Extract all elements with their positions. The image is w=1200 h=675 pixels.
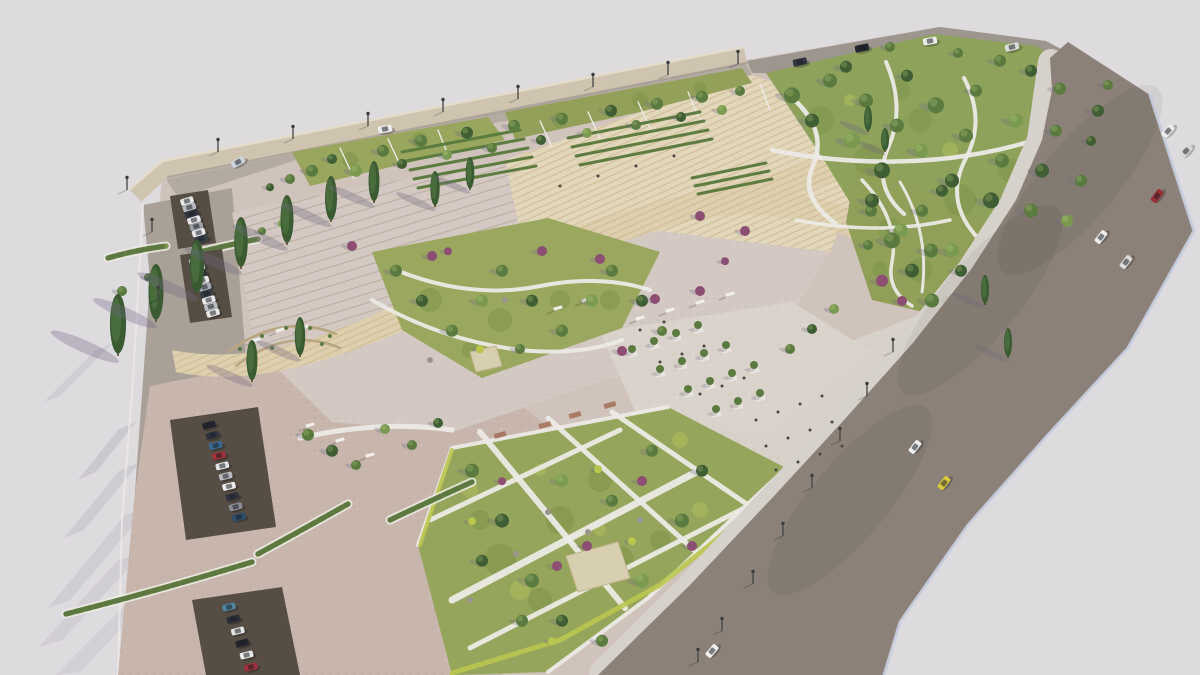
tree bbox=[468, 517, 476, 525]
tree-highlight bbox=[895, 225, 902, 232]
tree-highlight bbox=[557, 326, 563, 332]
tree-highlight bbox=[786, 89, 794, 97]
tree-highlight bbox=[391, 266, 397, 272]
landscape-rock bbox=[467, 597, 473, 603]
tree-highlight bbox=[398, 160, 403, 165]
tree bbox=[476, 345, 484, 353]
tree-highlight bbox=[891, 120, 898, 127]
tree-highlight bbox=[328, 155, 333, 160]
tree-highlight bbox=[259, 228, 263, 232]
tree-highlight bbox=[327, 446, 333, 452]
bosque-tree bbox=[700, 349, 708, 357]
tree-highlight bbox=[267, 184, 271, 188]
bollard bbox=[597, 175, 600, 178]
grass-patch-light bbox=[672, 432, 688, 448]
tree-highlight bbox=[352, 461, 357, 466]
tree-highlight bbox=[1010, 115, 1017, 122]
cypress-tree-light bbox=[466, 159, 471, 183]
tree-highlight bbox=[995, 56, 1001, 62]
street-lamp-head bbox=[666, 61, 669, 64]
tree-highlight bbox=[841, 62, 847, 68]
cypress-tree-light bbox=[369, 164, 376, 194]
street-lamp-head bbox=[156, 286, 159, 289]
bollard bbox=[681, 353, 684, 356]
tree bbox=[537, 246, 547, 256]
tree-highlight bbox=[587, 296, 593, 302]
landscape-rock bbox=[545, 509, 551, 515]
street-lamp-head bbox=[720, 617, 723, 620]
landscape-rock bbox=[502, 297, 508, 303]
tree-highlight bbox=[930, 99, 938, 107]
bosque-tree bbox=[694, 321, 702, 329]
street-lamp-head bbox=[591, 73, 594, 76]
tree-highlight bbox=[860, 95, 867, 102]
tree bbox=[427, 251, 437, 261]
landscape-rock bbox=[513, 551, 519, 557]
bosque-tree bbox=[650, 337, 658, 345]
tree-highlight bbox=[526, 575, 533, 582]
cypress-tree-light bbox=[326, 179, 333, 212]
street-lamp-head bbox=[291, 125, 294, 128]
street-lamp-head bbox=[696, 648, 699, 651]
tree bbox=[695, 286, 705, 296]
landscape-rock bbox=[585, 529, 591, 535]
bollard bbox=[821, 395, 824, 398]
tree-highlight bbox=[866, 195, 873, 202]
tree-highlight bbox=[954, 49, 959, 54]
bollard bbox=[775, 469, 778, 472]
tree-highlight bbox=[597, 636, 603, 642]
street-lamp-head bbox=[736, 50, 739, 53]
bosque-tree bbox=[756, 389, 764, 397]
street-lamp-head bbox=[150, 218, 153, 221]
tree-highlight bbox=[915, 145, 922, 152]
tree-highlight bbox=[583, 129, 588, 134]
tree-highlight bbox=[509, 121, 515, 127]
tree-highlight bbox=[434, 419, 439, 424]
tree-highlight bbox=[606, 106, 612, 112]
tree bbox=[628, 537, 636, 545]
tree-highlight bbox=[946, 175, 953, 182]
tree-highlight bbox=[118, 287, 123, 292]
tree bbox=[498, 477, 506, 485]
bollard bbox=[799, 403, 802, 406]
tree bbox=[876, 275, 888, 287]
bosque-tree bbox=[678, 357, 686, 365]
tree-highlight bbox=[378, 146, 384, 152]
tree-highlight bbox=[557, 616, 563, 622]
tree-highlight bbox=[286, 175, 291, 180]
bosque-tree bbox=[750, 361, 758, 369]
tree-highlight bbox=[925, 245, 932, 252]
tree bbox=[695, 211, 705, 221]
arc-shrub bbox=[284, 326, 288, 330]
tree-highlight bbox=[658, 327, 663, 332]
bosque-tree bbox=[728, 369, 736, 377]
street-lamp-head bbox=[516, 85, 519, 88]
cypress-tree-light bbox=[982, 277, 987, 299]
tree-highlight bbox=[676, 515, 683, 522]
tree-highlight bbox=[466, 465, 473, 472]
bollard bbox=[663, 321, 666, 324]
tree-highlight bbox=[1051, 126, 1057, 132]
tree-highlight bbox=[408, 441, 413, 446]
tree bbox=[897, 296, 907, 306]
bosque-tree bbox=[684, 385, 692, 393]
tree bbox=[595, 254, 605, 264]
landscape-rock bbox=[427, 357, 433, 363]
arc-shrub bbox=[308, 326, 312, 330]
tree-highlight bbox=[488, 144, 493, 149]
tree-highlight bbox=[1093, 106, 1099, 112]
bollard bbox=[703, 345, 706, 348]
tree-highlight bbox=[917, 206, 923, 212]
tree-highlight bbox=[830, 305, 835, 310]
tree-highlight bbox=[652, 99, 658, 105]
grass-patch-light bbox=[692, 502, 708, 518]
tree-highlight bbox=[303, 430, 309, 436]
bollard bbox=[635, 165, 638, 168]
cypress-tree-light bbox=[882, 129, 887, 146]
tree bbox=[582, 541, 592, 551]
street-lamp-head bbox=[216, 138, 219, 141]
tree-highlight bbox=[946, 245, 953, 252]
site-plan-svg bbox=[0, 0, 1200, 675]
tree-highlight bbox=[632, 121, 637, 126]
tree-highlight bbox=[824, 75, 831, 82]
tree-highlight bbox=[516, 345, 521, 350]
tree bbox=[687, 541, 697, 551]
bollard bbox=[699, 393, 702, 396]
street-lamp-head bbox=[751, 570, 754, 573]
tree-highlight bbox=[637, 296, 643, 302]
tree-highlight bbox=[462, 128, 468, 134]
bollard bbox=[639, 329, 642, 332]
tree-highlight bbox=[607, 496, 613, 502]
bollard bbox=[841, 445, 844, 448]
cypress-tree-light bbox=[296, 319, 302, 348]
bollard bbox=[765, 445, 768, 448]
arc-shrub bbox=[328, 334, 332, 338]
grass-patch bbox=[600, 290, 620, 310]
tree-highlight bbox=[307, 166, 313, 172]
landscape-rock bbox=[637, 517, 643, 523]
tree-highlight bbox=[447, 326, 453, 332]
cypress-tree-light bbox=[1005, 330, 1010, 352]
street-lamp-head bbox=[125, 176, 128, 179]
bollard bbox=[777, 411, 780, 414]
bollard bbox=[743, 377, 746, 380]
arc-shrub bbox=[260, 334, 264, 338]
bollard bbox=[755, 419, 758, 422]
tree-highlight bbox=[697, 466, 703, 472]
tree bbox=[552, 561, 562, 571]
tree-highlight bbox=[956, 266, 962, 272]
tree-highlight bbox=[996, 155, 1003, 162]
tree-highlight bbox=[985, 194, 993, 202]
tree-highlight bbox=[786, 345, 791, 350]
tree-highlight bbox=[1025, 205, 1032, 212]
tree-highlight bbox=[1062, 216, 1068, 222]
tree-highlight bbox=[477, 296, 483, 302]
tree-highlight bbox=[636, 575, 643, 582]
street-lamp-head bbox=[865, 382, 868, 385]
tree-highlight bbox=[864, 241, 869, 246]
bollard bbox=[559, 185, 562, 188]
tree-highlight bbox=[1104, 81, 1109, 86]
tree-highlight bbox=[937, 186, 943, 192]
tree-highlight bbox=[537, 136, 542, 141]
tree bbox=[637, 476, 647, 486]
tree-highlight bbox=[416, 136, 422, 142]
tree-highlight bbox=[677, 113, 682, 118]
tree-highlight bbox=[527, 296, 533, 302]
bollard bbox=[819, 453, 822, 456]
bollard bbox=[797, 461, 800, 464]
tree-highlight bbox=[697, 92, 703, 98]
tree-highlight bbox=[971, 86, 977, 92]
tree-highlight bbox=[417, 296, 423, 302]
street-lamp-head bbox=[366, 112, 369, 115]
tree-highlight bbox=[846, 134, 854, 142]
tree-highlight bbox=[381, 425, 386, 430]
tree-highlight bbox=[496, 515, 503, 522]
cypress-tree-light bbox=[247, 343, 254, 373]
street-lamp-head bbox=[810, 474, 813, 477]
tree-highlight bbox=[902, 71, 908, 77]
tree-highlight bbox=[806, 115, 813, 122]
bosque-tree bbox=[656, 365, 664, 373]
street-lamp-head bbox=[441, 98, 444, 101]
arc-shrub bbox=[238, 347, 242, 351]
bosque-tree bbox=[672, 329, 680, 337]
bollard bbox=[673, 155, 676, 158]
tree-highlight bbox=[557, 114, 563, 120]
tree bbox=[721, 257, 729, 265]
tree-highlight bbox=[557, 476, 563, 482]
tree-highlight bbox=[926, 295, 933, 302]
arc-shrub bbox=[320, 342, 324, 346]
render-viewport bbox=[0, 0, 1200, 675]
bosque-tree bbox=[734, 397, 742, 405]
street-lamp-head bbox=[891, 338, 894, 341]
cypress-tree-light bbox=[865, 108, 870, 127]
street-lamp-head bbox=[838, 427, 841, 430]
bosque-tree bbox=[706, 377, 714, 385]
tree bbox=[347, 241, 357, 251]
tree-highlight bbox=[736, 87, 741, 92]
tree-highlight bbox=[443, 151, 448, 156]
bosque-tree bbox=[712, 405, 720, 413]
grass-patch bbox=[488, 308, 512, 332]
tree-highlight bbox=[647, 446, 653, 452]
tree bbox=[594, 465, 602, 473]
tree-highlight bbox=[351, 166, 357, 172]
tree-highlight bbox=[477, 556, 483, 562]
tree bbox=[548, 637, 556, 645]
tree bbox=[650, 294, 660, 304]
tree-highlight bbox=[497, 266, 503, 272]
street-lamp-head bbox=[781, 522, 784, 525]
tree-highlight bbox=[808, 325, 813, 330]
bollard bbox=[831, 421, 834, 424]
tree-highlight bbox=[1055, 84, 1061, 90]
tree-highlight bbox=[1076, 176, 1082, 182]
tree-highlight bbox=[1026, 66, 1032, 72]
bollard bbox=[659, 361, 662, 364]
tree-highlight bbox=[886, 234, 894, 242]
bosque-tree bbox=[628, 345, 636, 353]
tree-highlight bbox=[960, 130, 967, 137]
tree-highlight bbox=[718, 106, 723, 111]
bosque-tree bbox=[722, 341, 730, 349]
tree-highlight bbox=[1087, 137, 1092, 142]
tree bbox=[617, 346, 627, 356]
bollard bbox=[721, 385, 724, 388]
tree-highlight bbox=[1036, 165, 1043, 172]
bollard bbox=[787, 437, 790, 440]
tree-highlight bbox=[886, 43, 891, 48]
tree-highlight bbox=[876, 164, 884, 172]
tree-highlight bbox=[517, 616, 523, 622]
bollard bbox=[809, 429, 812, 432]
tree bbox=[444, 247, 452, 255]
tree-highlight bbox=[607, 266, 613, 272]
tree bbox=[740, 226, 750, 236]
tree-highlight bbox=[906, 265, 913, 272]
